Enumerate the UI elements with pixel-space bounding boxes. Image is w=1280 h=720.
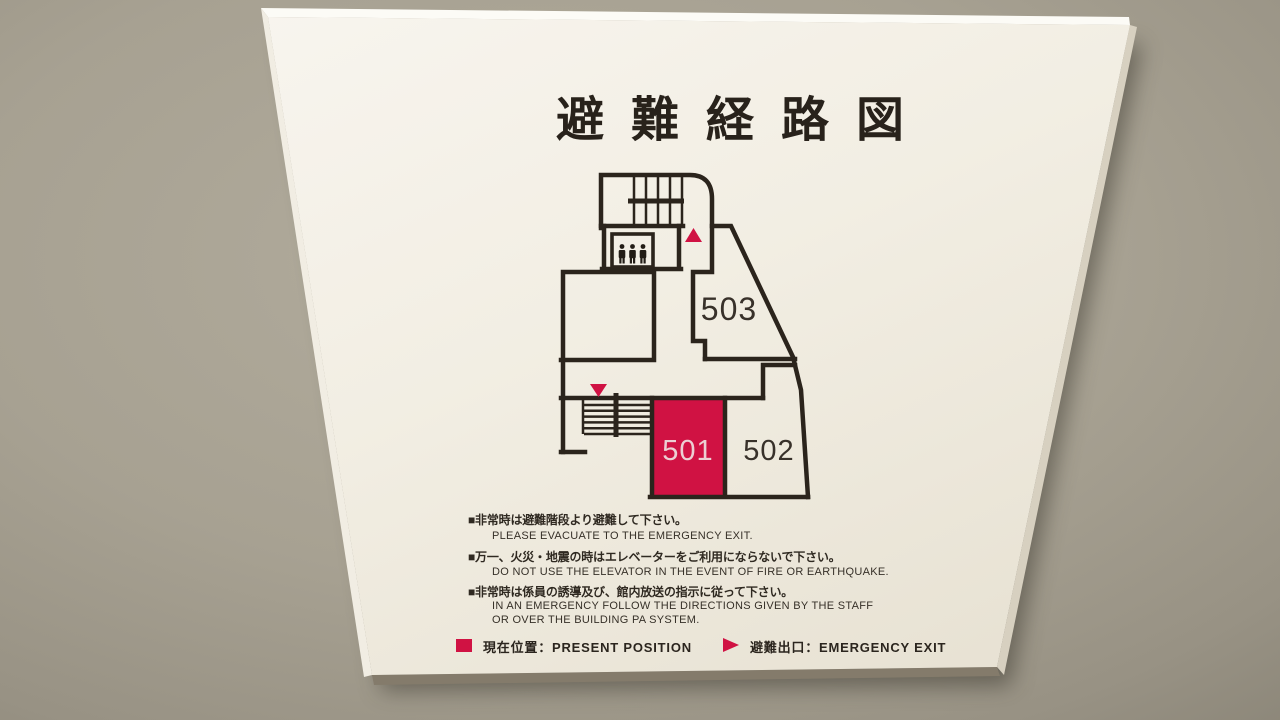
notice-3-en-line1: IN AN EMERGENCY FOLLOW THE DIRECTIONS GI…: [492, 600, 873, 612]
floor-plan: 503 501 502: [540, 165, 830, 510]
emergency-exit-down-icon: [590, 384, 607, 397]
emergency-exit-arrow-icon: [723, 638, 739, 652]
room-501-label: 501: [662, 435, 713, 467]
emergency-exit-up-icon: [685, 228, 702, 242]
legend-present-position-label: 現在位置：PRESENT POSITION: [483, 637, 692, 656]
sign-title: 避難経路図: [556, 80, 931, 150]
legend-emergency-exit-label: 避難出口：EMERGENCY EXIT: [750, 637, 946, 656]
elevator-icon: [612, 234, 653, 267]
wall-left-room: [561, 272, 654, 452]
photo-scene: 避難経路図: [0, 0, 1280, 720]
room-503-label: 503: [701, 291, 757, 327]
stairs-upper-icon: [628, 176, 684, 224]
notice-2-en: DO NOT USE THE ELEVATOR IN THE EVENT OF …: [492, 566, 889, 578]
notice-1-jp: ■非常時は避難階段より避難して下さい。: [468, 511, 687, 528]
room-502-label: 502: [743, 435, 794, 467]
present-position-swatch-icon: [456, 639, 472, 652]
notice-2-jp: ■万一、火災・地震の時はエレベーターをご利用にならないで下さい。: [468, 548, 841, 565]
notice-1-en: PLEASE EVACUATE TO THE EMERGENCY EXIT.: [492, 530, 753, 542]
notice-3-jp: ■非常時は係員の誘導及び、館内放送の指示に従って下さい。: [468, 583, 793, 600]
notice-3-en-line2: OR OVER THE BUILDING PA SYSTEM.: [492, 614, 700, 626]
